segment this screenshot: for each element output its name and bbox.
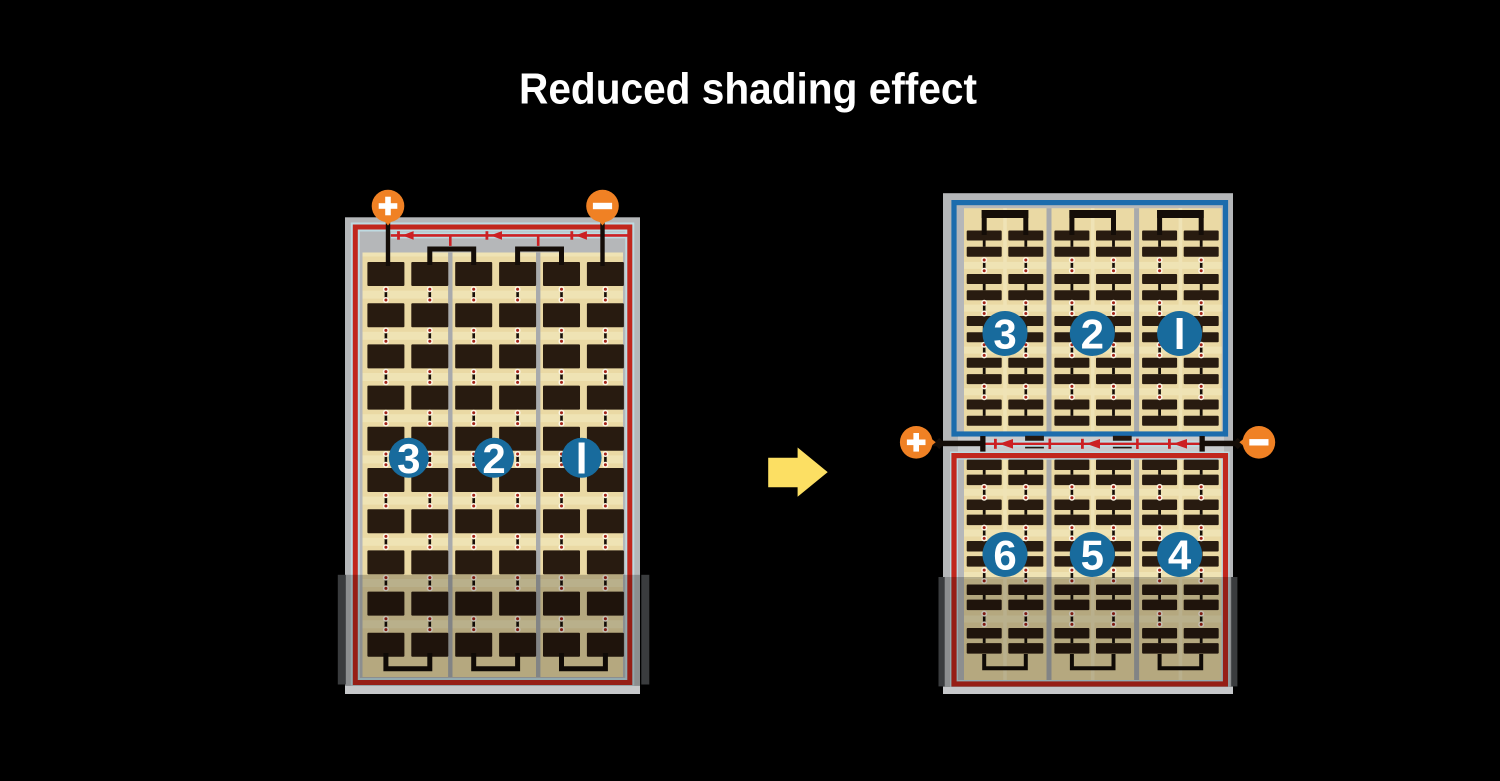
svg-text:2: 2 xyxy=(482,435,505,482)
svg-text:3: 3 xyxy=(993,311,1016,358)
svg-text:4: 4 xyxy=(1168,532,1192,579)
svg-text:5: 5 xyxy=(1081,532,1104,579)
svg-text:2: 2 xyxy=(1081,311,1104,358)
svg-text:3: 3 xyxy=(397,435,420,482)
svg-text:Reduced shading effect: Reduced shading effect xyxy=(519,65,977,114)
svg-text:6: 6 xyxy=(993,532,1016,579)
